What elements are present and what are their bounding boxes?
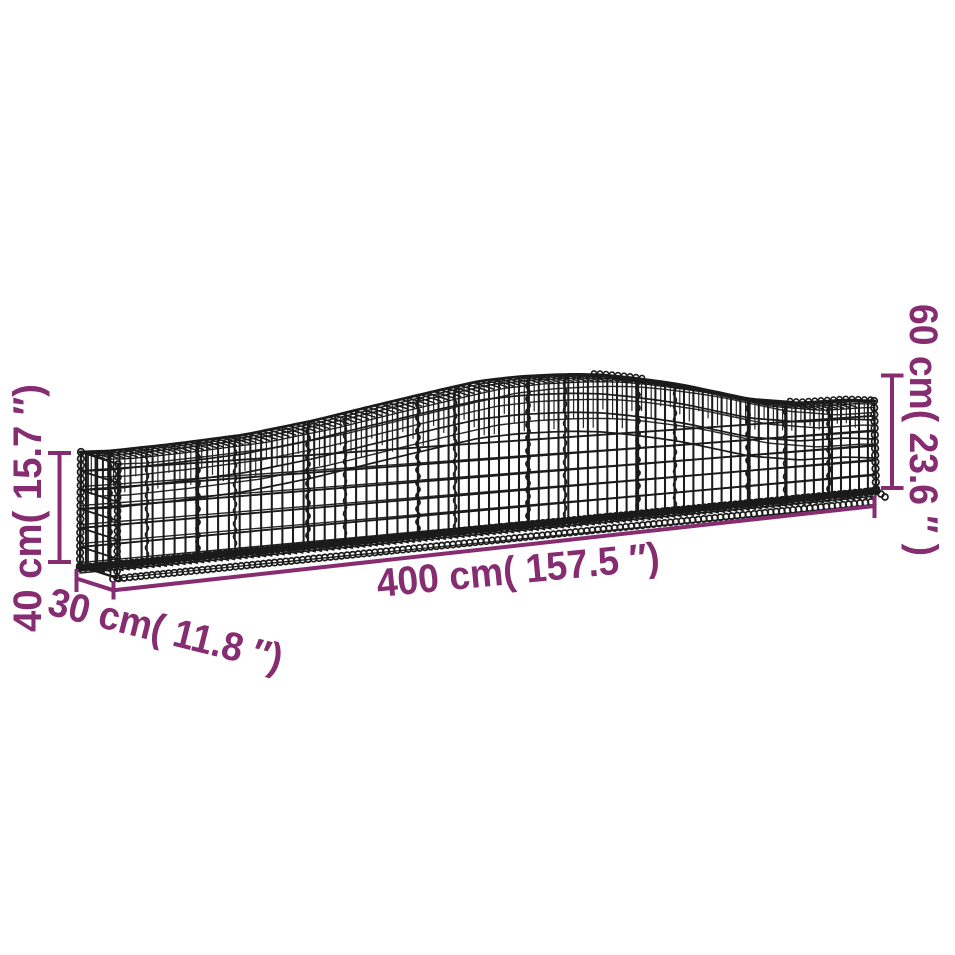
svg-text:40 cm( 15.7 ″): 40 cm( 15.7 ″) bbox=[6, 384, 50, 632]
svg-text:60 cm( 23.6 ″ ): 60 cm( 23.6 ″ ) bbox=[901, 304, 945, 556]
